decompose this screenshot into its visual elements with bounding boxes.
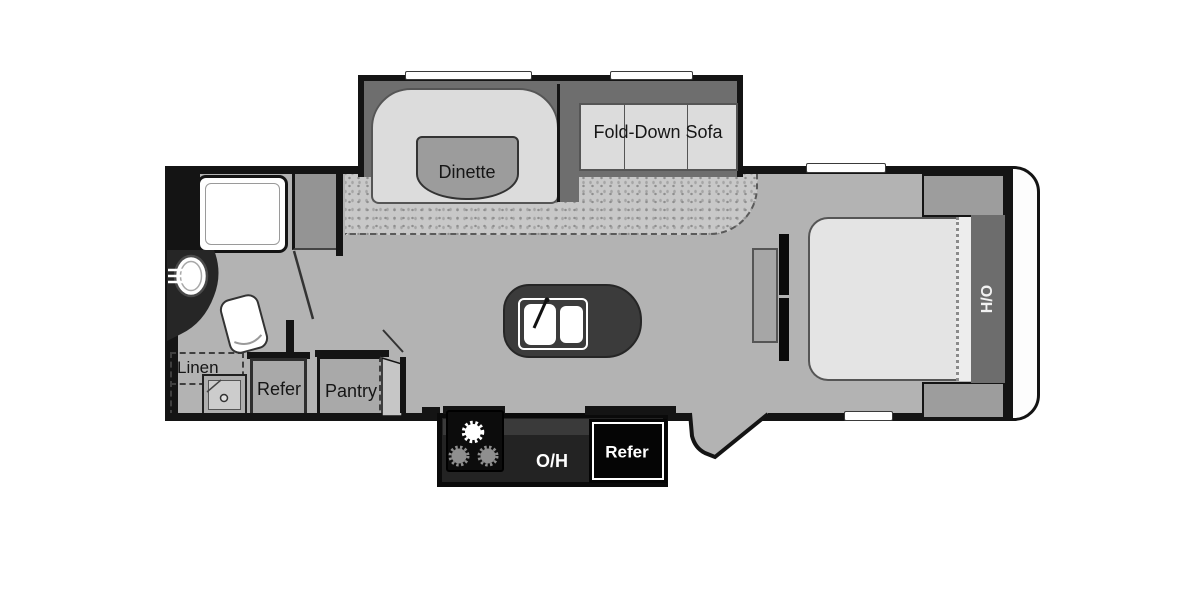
dinette-label: Dinette: [438, 163, 495, 181]
sink-basin-right: [560, 306, 583, 343]
window: [806, 163, 886, 173]
stove: [446, 410, 504, 472]
bathroom-partition-wall: [336, 170, 343, 256]
wardrobe-top: [922, 174, 1005, 217]
window: [844, 411, 893, 421]
floorplan-canvas: Dinette Fold-Down Sofa Linen Refer Pantr…: [0, 0, 1200, 600]
overhead-cabinet-label: O/H: [536, 452, 568, 470]
pantry-label: Pantry: [325, 382, 377, 400]
wall-stub: [286, 320, 294, 352]
bed: [808, 217, 958, 381]
linen-label: Linen: [177, 359, 219, 376]
tv-dresser: [752, 248, 778, 343]
bathroom-wall: [165, 166, 200, 262]
sink-basin-left: [524, 304, 556, 345]
tv-mount-gap: [779, 295, 789, 298]
bottom-wall-left: [165, 413, 440, 421]
head-of-bed-label: H/O: [980, 285, 996, 313]
refrigerator-label: Refer: [605, 444, 648, 461]
vanity-sink: [202, 374, 247, 416]
window: [610, 71, 693, 80]
bathroom-cabinet: [292, 174, 337, 250]
overhead-lintel: [585, 406, 676, 415]
shower-stall: [197, 175, 288, 253]
fold-down-sofa-label: Fold-Down Sofa: [593, 123, 722, 141]
wardrobe-bottom: [922, 382, 1005, 419]
refer-cabinet-label: Refer: [257, 380, 301, 398]
vanity-basin: [208, 380, 241, 410]
window: [405, 71, 532, 80]
slide-divider: [557, 84, 579, 202]
shower-pan: [205, 183, 280, 245]
